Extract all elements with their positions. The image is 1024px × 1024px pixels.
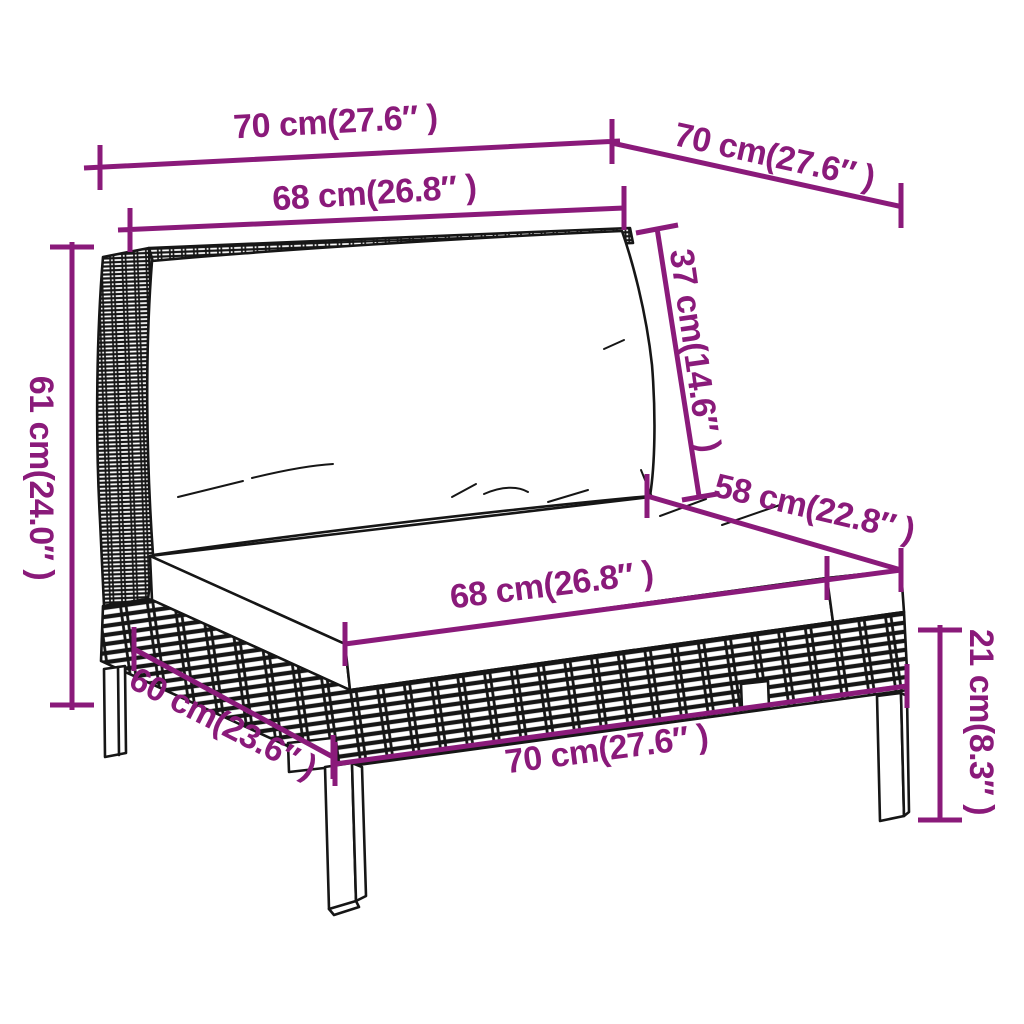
dimension-back-cushion-height-label: 37 cm(14.6″ )	[662, 247, 728, 455]
product-dimension-diagram: 70 cm(27.6″ ) 70 cm(27.6″ ) 68 cm(26.8″ …	[0, 0, 1024, 1024]
dimension-top-width-label: 70 cm(27.6″ )	[232, 98, 438, 147]
dimension-leg-height-label: 21 cm(8.3″ )	[962, 629, 1000, 815]
dimension-top-depth: 70 cm(27.6″ )	[612, 116, 903, 228]
sofa-dimension-drawing: 70 cm(27.6″ ) 70 cm(27.6″ ) 68 cm(26.8″ …	[0, 0, 1024, 1024]
rear-left-leg	[104, 666, 126, 757]
front-right-leg	[877, 693, 909, 821]
dimension-back-width-label: 68 cm(26.8″ )	[271, 168, 477, 218]
dimension-top-depth-label: 70 cm(27.6″ )	[670, 116, 878, 197]
dimension-total-height-label: 61 cm(24.0″ )	[22, 376, 60, 580]
front-left-leg	[325, 763, 366, 915]
dimension-total-height: 61 cm(24.0″ )	[22, 242, 94, 710]
dimension-leg-height: 21 cm(8.3″ )	[918, 625, 1000, 822]
